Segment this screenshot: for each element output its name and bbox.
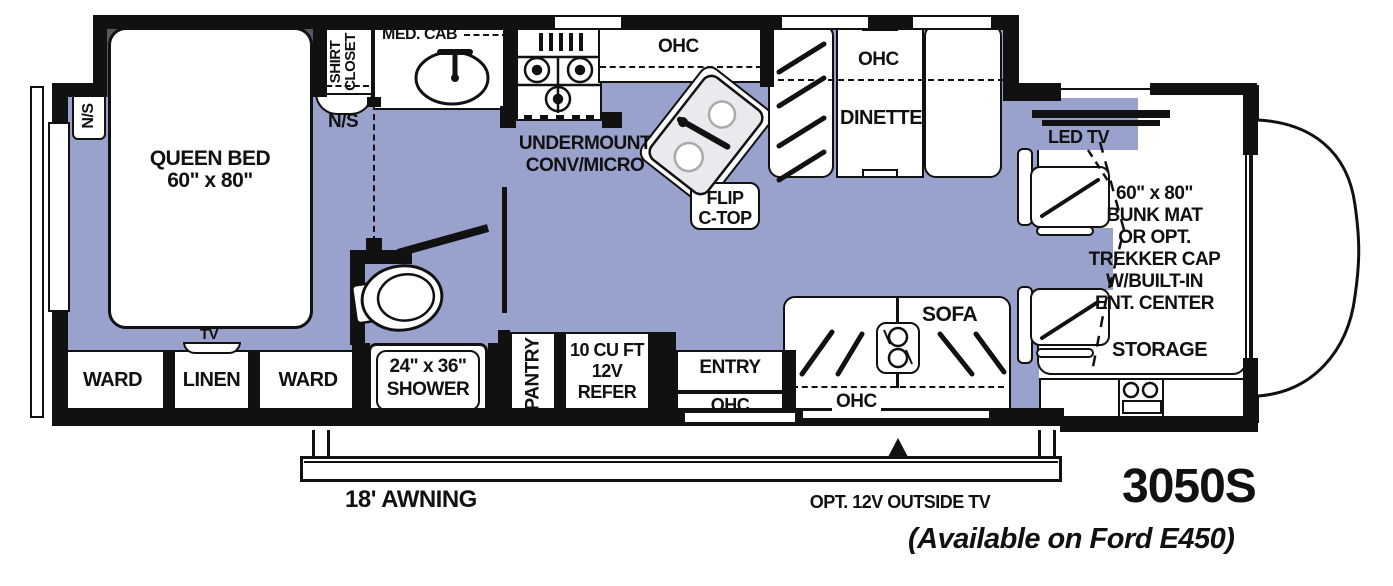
dinette-label: DINETTE	[840, 108, 922, 129]
outside-tv-label: OPT. 12V OUTSIDE TV	[788, 493, 1012, 512]
sofa-label: SOFA	[922, 304, 977, 326]
bedroom-door-dashed	[373, 104, 375, 242]
sofa-seatbelts	[802, 332, 1004, 374]
bedroom-tv-label: TV	[200, 327, 218, 343]
undermount-label: UNDERMOUNTCONV/MICRO	[510, 133, 660, 177]
ward-right-label: WARD	[258, 370, 358, 391]
entry-label: ENTRY	[676, 358, 784, 378]
ns-right-label: N/S	[328, 112, 358, 132]
front-console-knobs	[1124, 383, 1157, 397]
med-cab-label: MED. CAB	[382, 27, 457, 44]
sofa-ohc-label: OHC	[832, 392, 881, 412]
dinette-ohc-label: OHC	[858, 50, 899, 70]
kitchen-ohc-label: OHC	[658, 37, 699, 57]
sofa-cupholders	[884, 328, 912, 367]
shower-label: 24" x 36"SHOWER	[376, 355, 480, 401]
bath-sink	[416, 52, 488, 104]
outside-tv-marker	[888, 438, 908, 457]
entry-ohc-dashed	[680, 390, 780, 392]
bunk-label: 60" x 80"BUNK MATOR OPT. TREKKER CAPW/BU…	[1072, 183, 1237, 315]
led-tv-label: LED TV	[1048, 128, 1109, 147]
linen-label: LINEN	[173, 370, 250, 391]
kitchen-sink	[646, 72, 767, 198]
entry-ohc-label: OHC	[676, 396, 784, 415]
ward-left-label: WARD	[60, 370, 165, 391]
stove-burners	[518, 33, 600, 120]
availability-label: (Available on Ford E450)	[908, 524, 1234, 554]
kitchen-ohc-dashed	[600, 66, 762, 68]
storage-label: STORAGE	[1112, 340, 1207, 361]
refer-label: 10 CU FT12VREFER	[564, 340, 650, 403]
cab-hood-outline	[1258, 120, 1359, 396]
queen-bed-label: QUEEN BED60" x 80"	[125, 148, 295, 192]
bath-door	[398, 228, 488, 253]
medcab-dashed	[464, 34, 508, 36]
shirt-closet-rod-dashed	[317, 85, 369, 87]
rv-floorplan-3050s: N/S SHIRT CLOSET PANTRY	[0, 0, 1393, 586]
awning-label: 18' AWNING	[345, 487, 477, 512]
flip-ctop-label: FLIPC-TOP	[690, 188, 760, 228]
dinette-seatbelts	[779, 44, 824, 180]
dinette-ohc-dashed	[768, 79, 1004, 81]
model-label: 3050S	[1122, 462, 1256, 512]
toilet	[350, 261, 446, 337]
sofa-ohc-dashed	[792, 386, 1004, 388]
